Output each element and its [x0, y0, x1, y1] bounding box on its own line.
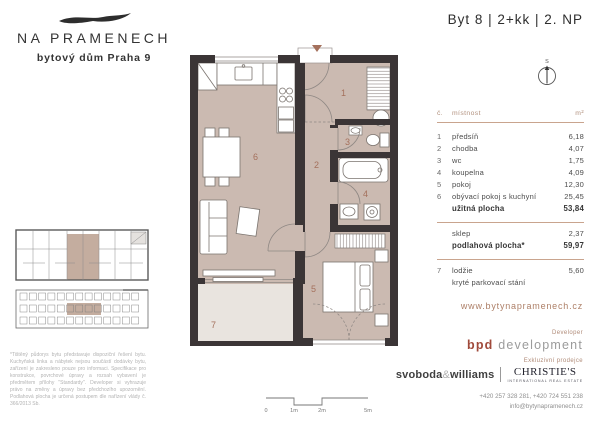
- oven: [279, 107, 294, 119]
- room-number-5: 5: [311, 284, 316, 294]
- brand-block: NA PRAMENECH bytový dům Praha 9: [8, 10, 180, 64]
- coffee-table: [236, 207, 260, 237]
- nightstand: [375, 250, 388, 262]
- contact-block: +420 257 328 281, +420 724 551 238 info@…: [479, 392, 583, 411]
- logo-separator: [500, 367, 501, 382]
- kitchen-window: [215, 57, 278, 61]
- row-area: 59,97: [563, 241, 584, 250]
- row-name: kryté parkovací stání: [452, 278, 584, 287]
- christies-logo: CHRISTIE'S INTERNATIONAL REAL ESTATE: [507, 366, 583, 383]
- bathtub: [339, 158, 388, 182]
- row-name: užitná plocha: [452, 204, 563, 213]
- row-area: 2,37: [569, 229, 584, 238]
- svoboda-williams-logo: svoboda&williams: [396, 369, 495, 381]
- row-area: 12,30: [564, 180, 584, 189]
- table-row: 2 chodba 4,07: [437, 144, 584, 156]
- sales-logos: svoboda&williams CHRISTIE'S INTERNATIONA…: [396, 366, 583, 383]
- developer-label: Developer: [552, 330, 583, 336]
- tv-bench: [203, 270, 275, 276]
- bpd-development-logo: bpd development: [467, 338, 583, 352]
- scale-label-2m: 2m: [318, 408, 326, 414]
- table-row-floor-area: podlahová plocha* 59,97: [437, 241, 584, 255]
- compass-north-label: S: [545, 59, 549, 65]
- kitchen-sink: [235, 67, 252, 80]
- sw-part1: svoboda: [396, 369, 443, 381]
- footnote-disclaimer: *Tištěný půdorys bytu představuje dispoz…: [10, 352, 146, 408]
- dining-table: [203, 128, 240, 186]
- brand-name: NA PRAMENECH: [8, 30, 180, 46]
- row-name: koupelna: [452, 168, 569, 177]
- table-row: 3 wc 1,75: [437, 156, 584, 168]
- row-area: 25,45: [564, 192, 584, 201]
- floor-overview-diagram: [15, 229, 149, 283]
- sw-ampersand: &: [442, 369, 450, 381]
- table-row: 1 předsíň 6,18: [437, 132, 584, 144]
- room-number-3: 3: [345, 137, 350, 147]
- website-link[interactable]: www.bytynapramenech.cz: [461, 301, 583, 311]
- brand-subtitle: bytový dům Praha 9: [8, 52, 180, 64]
- room-number-7: 7: [211, 320, 216, 330]
- entrance-niche: [298, 48, 332, 63]
- nightstand: [375, 314, 388, 326]
- exclusive-seller-label: Exkluzivní prodejce: [524, 358, 583, 364]
- table-row-cellar: sklep 2,37: [437, 229, 584, 241]
- row-no: 7: [437, 266, 452, 275]
- col-room: místnost: [452, 110, 575, 117]
- room-number-4: 4: [363, 189, 368, 199]
- row-name: chodba: [452, 144, 569, 153]
- building-elevation-diagram: [15, 288, 149, 332]
- french-window: [313, 340, 385, 344]
- floorplan-sheet: NA PRAMENECH bytový dům Praha 9 Byt 8 | …: [0, 0, 600, 424]
- row-name: podlahová plocha*: [452, 241, 563, 250]
- bpd-logo-text: bpd: [467, 338, 494, 352]
- hall-wardrobe-hatch: [367, 67, 390, 110]
- row-area: 4,07: [569, 144, 584, 153]
- col-area: m²: [575, 110, 584, 117]
- row-no: 3: [437, 156, 452, 165]
- scale-label-1m: 1m: [290, 408, 298, 414]
- compass-north-icon: S: [534, 56, 560, 88]
- row-name: wc: [452, 156, 569, 165]
- table-row: 5 pokoj 12,30: [437, 180, 584, 192]
- fridge: [279, 120, 294, 132]
- unit-title: Byt 8 | 2+kk | 2. NP: [448, 12, 583, 27]
- row-name: obývací pokoj s kuchyní: [452, 192, 564, 201]
- row-area: 1,75: [569, 156, 584, 165]
- scale-label-5m: 5m: [364, 408, 372, 414]
- row-no: 2: [437, 144, 452, 153]
- row-name: lodžie: [452, 266, 569, 275]
- room-number-2: 2: [314, 160, 319, 170]
- bpd-logo-text2: development: [498, 338, 583, 352]
- row-name: pokoj: [452, 180, 564, 189]
- sw-part2: williams: [450, 369, 494, 381]
- table-divider: [437, 122, 584, 123]
- table-row: 4 koupelna 4,09: [437, 168, 584, 180]
- sofa: [200, 200, 227, 254]
- room-area-table: č. místnost m² 1 předsíň 6,18 2 chodba 4…: [437, 110, 584, 290]
- scale-bar: 0 1m 2m 5m: [258, 392, 378, 414]
- row-no: 5: [437, 180, 452, 189]
- wave-logo-icon: [51, 12, 137, 26]
- row-area: 53,84: [563, 204, 584, 213]
- christies-wordmark: CHRISTIE'S: [507, 366, 583, 378]
- table-row-parking: kryté parkovací stání: [437, 278, 584, 290]
- row-name: sklep: [452, 229, 569, 238]
- bathroom-sink: [340, 204, 358, 219]
- table-row-usable-area: užitná plocha 53,84: [437, 204, 584, 218]
- room-number-6: 6: [253, 152, 258, 162]
- col-number: č.: [437, 110, 452, 117]
- contact-email: info@bytynapramenech.cz: [479, 402, 583, 412]
- scale-label-0: 0: [264, 408, 267, 414]
- row-area: 4,09: [569, 168, 584, 177]
- row-no: 4: [437, 168, 452, 177]
- row-area: 5,60: [569, 266, 584, 275]
- table-header-row: č. místnost m²: [437, 110, 584, 122]
- room-number-1: 1: [341, 88, 346, 98]
- contact-phones: +420 257 328 281, +420 724 551 238: [479, 392, 583, 402]
- washing-machine: [364, 204, 380, 220]
- row-no: 1: [437, 132, 452, 141]
- christies-subtitle: INTERNATIONAL REAL ESTATE: [507, 379, 583, 383]
- bedroom-wardrobe-hatch: [335, 234, 385, 248]
- row-name: předsíň: [452, 132, 569, 141]
- floor-plan: 1 2 3 4 5 6 7: [185, 44, 405, 354]
- row-area: 6,18: [569, 132, 584, 141]
- table-row-loggia: 7 lodžie 5,60: [437, 266, 584, 278]
- table-row: 6 obývací pokoj s kuchyní 25,45: [437, 192, 584, 204]
- row-no: 6: [437, 192, 452, 201]
- loggia-floor: [198, 284, 293, 342]
